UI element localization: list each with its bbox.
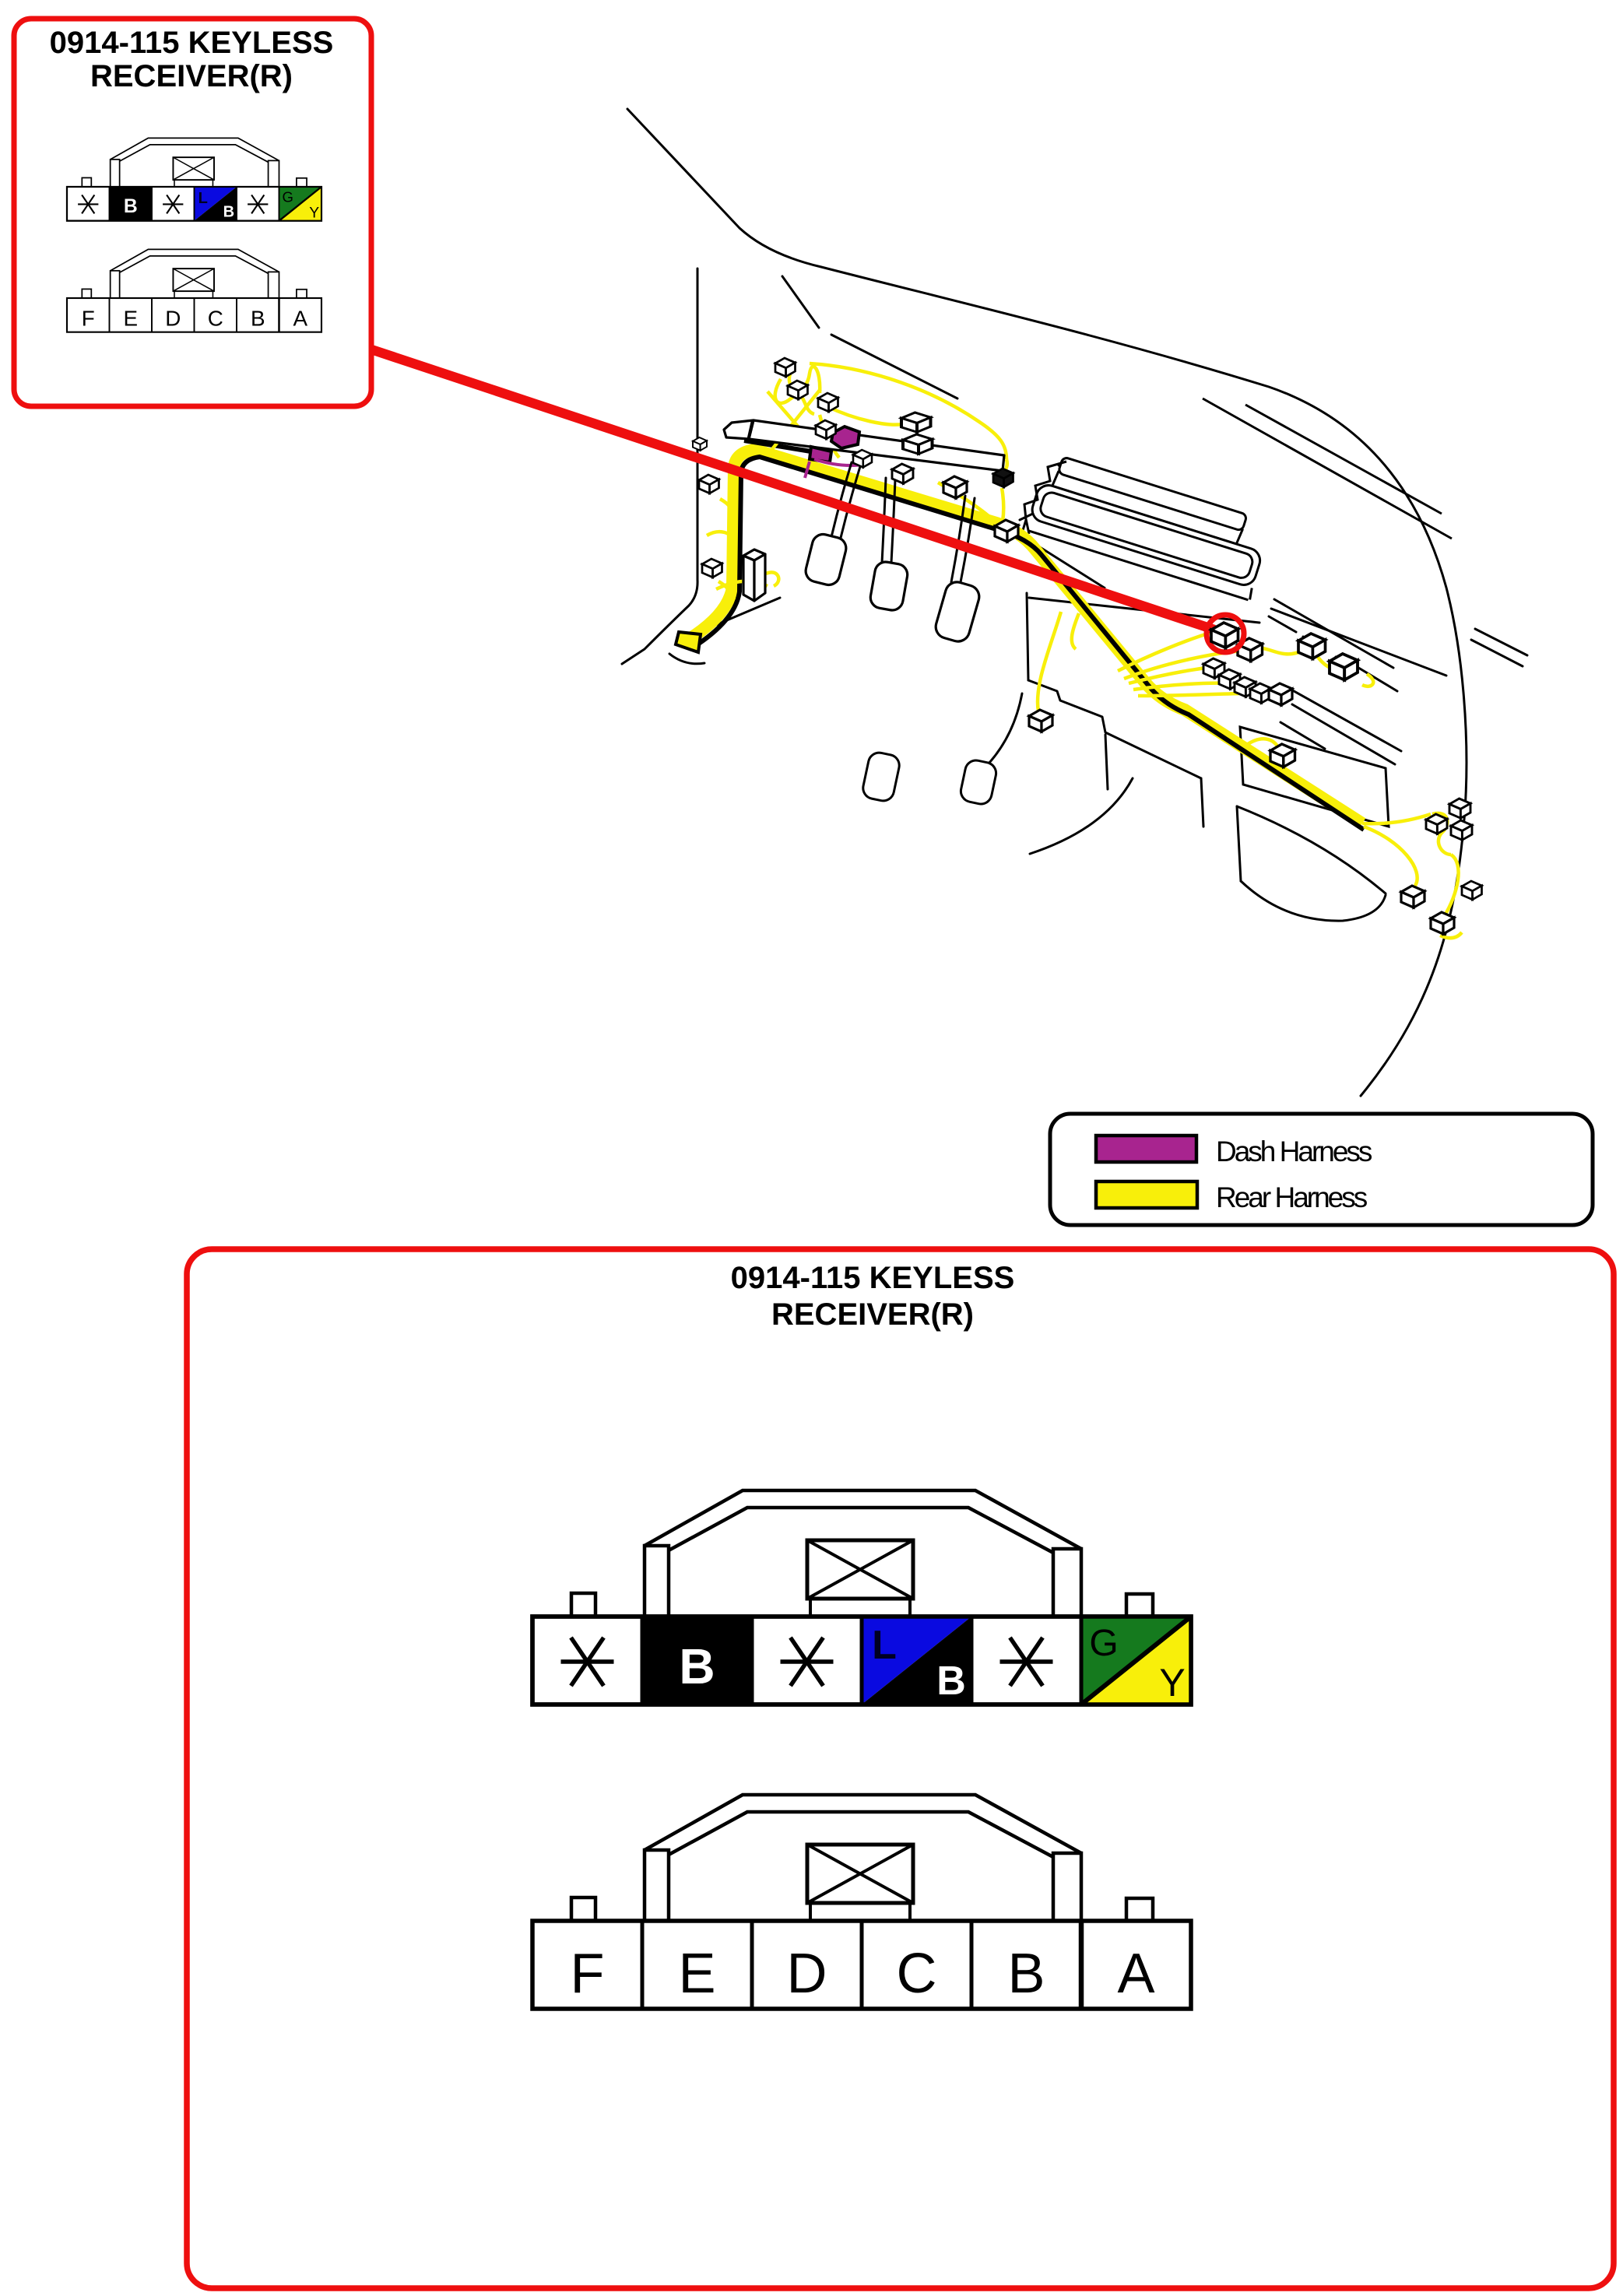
svg-text:Dash Harness: Dash Harness (1216, 1136, 1372, 1167)
svg-text:Rear Harness: Rear Harness (1216, 1181, 1368, 1213)
svg-text:0914-115 KEYLESS: 0914-115 KEYLESS (731, 1261, 1015, 1295)
svg-text:RECEIVER(R): RECEIVER(R) (90, 59, 293, 93)
svg-text:RECEIVER(R): RECEIVER(R) (771, 1297, 974, 1332)
svg-text:0914-115 KEYLESS: 0914-115 KEYLESS (50, 26, 334, 60)
